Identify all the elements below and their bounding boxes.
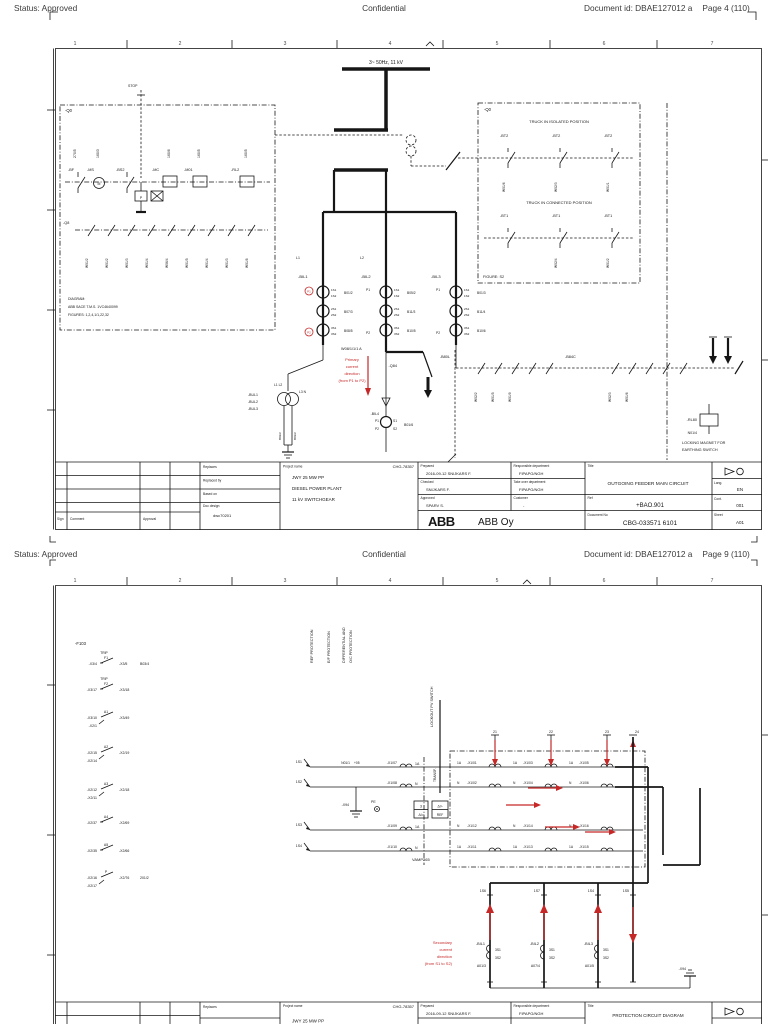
wire-label: W01/4 [205,258,209,268]
ruler-3: 3 [284,578,287,584]
svg-text:B03/4: B03/4 [140,662,149,666]
wire-label: W01/2 [606,258,610,268]
contact-item: A2 -X2/15 -X2/14 -X2/19 [87,745,130,763]
diff-protection-label: DIFFERENTIAL AND [342,627,346,663]
svg-text:-X1/12: -X1/12 [467,824,477,828]
bt1-label: -BT1 [500,214,508,218]
phase-l2: L2 [360,256,364,260]
svg-text:N: N [513,781,516,785]
tb-approved-value: SPARV S. [426,503,444,508]
wire-label: N01/1 [341,761,350,765]
coil-label: 1A [415,825,420,829]
svg-text:N: N [457,781,460,785]
relay-box: ΔI> [437,805,442,809]
bt2-label: -BT2 [552,134,560,138]
tb-customer-value: - [523,503,525,508]
svg-text:-X2/16: -X2/16 [87,876,97,880]
ct-terminal: 3S2 [394,332,400,336]
svg-text:-X2/69: -X2/69 [119,821,129,825]
contact-item: A1 -X3/10 -X2/1 -X3/49 [87,710,130,728]
p2-mark: P2 [366,331,370,335]
wire-label: W01/3 [125,258,129,268]
contact-item: P -X2/16 -X2/17 -X2/76 201/2 [87,870,149,888]
terminal-label: 1S2 [296,780,302,784]
figure-label: FIGURE: S2 [483,275,504,279]
ruler-7: 7 [711,578,714,584]
tb-approval: Approval [143,517,156,521]
bil2-label: -BIL2 [530,942,539,946]
tb-lang-value: EN [737,487,743,492]
wire-label: A01/3 [477,964,486,968]
svg-text:-X3/10: -X3/10 [87,716,97,720]
ruler-5: 5 [496,41,499,47]
q84-label: -Q84 [389,364,397,368]
bs2-label: -BS2 [116,168,124,172]
svg-text:1A: 1A [513,761,518,765]
ct-terminal: 2S2 [331,313,337,317]
contact-item: TRIP F2 -X3/17 -X3/18 [87,677,130,692]
ct-wire: B10/6 [477,329,486,333]
svg-text:F1: F1 [104,656,108,660]
red-note: direction [437,954,452,959]
ruler-4: 4 [389,41,392,47]
ruler-3: 3 [284,41,287,47]
ref-protection-label: REF PROTECTION [310,629,314,663]
contact-item: A5 -X2/35 -X2/66 [87,843,130,853]
vt-phases: L3 N [299,390,307,394]
tb-replaces: Replaces [203,1005,217,1009]
p1-mark: P1 [307,290,311,294]
x1-terminal: -X1/10 [387,845,397,849]
coil-label: N [415,782,418,786]
svg-text:-X2/17: -X2/17 [87,884,97,888]
wire-label: W02/4 [554,258,558,268]
p1-mark: P1 [375,419,379,423]
arrow-label: 21 [493,730,497,734]
svg-text:N: N [569,781,572,785]
bul2-label: -BUL2 [248,400,258,404]
ruler-2: 2 [179,578,182,584]
coil-label: N [415,846,418,850]
tb-doc-design: Doc design [203,504,220,508]
svg-text:-X2/37: -X2/37 [87,821,97,825]
svg-text:1A: 1A [513,845,518,849]
ct-terminal: 2S1 [331,307,337,311]
ruler-7: 7 [711,41,714,47]
rl2-label: -RL2 [231,168,239,172]
red-note: Secondary [433,940,452,945]
svg-text:-X1/02: -X1/02 [467,781,477,785]
tb-comment: Comment [70,517,84,521]
terminal-label: 1S1 [296,760,302,764]
ct-wire: B08/5 [344,329,353,333]
svg-text:1A: 1A [457,761,462,765]
svg-text:-X3/49: -X3/49 [119,716,129,720]
tb-cont-value: 001 [736,503,744,508]
red-note: (from P1 to P2) [338,378,366,383]
ct-terminal: 3S2 [331,332,337,336]
ruler-2: 2 [179,41,182,47]
tb-ref-label: Ref [588,496,593,500]
tb-replaced-by: Replaced by [203,479,222,483]
ct-terminal: 2S2 [394,313,400,317]
diagram-note: FIGURES: 1,2,4,1/1,22,32 [68,313,109,317]
ruler-5: 5 [496,578,499,584]
diagram-note: DIAGRAM: [68,297,85,301]
projection-symbol-icon [725,468,734,475]
bul1-label: -BUL1 [248,393,258,397]
p1-mark: P1 [366,288,370,292]
wire-label: W02/3 [608,392,612,402]
b84c-label: -B84C [565,355,576,359]
schematic-page-4: 1 2 3 4 5 6 7 3~ 50Hz, 11 kV [0,0,768,535]
ct-terminal: 1S1 [394,288,400,292]
bil1-label: -BIL1 [476,942,485,946]
motor-icon: M [98,182,101,186]
svg-text:-X2/76: -X2/76 [119,876,129,880]
x1-terminal: -X1/07 [387,761,397,765]
s1-mark: S1 [393,419,397,423]
arrow-label: 23 [605,730,609,734]
ct-secondary-circuit: 1S6 1S7 1S4 1S5 -BIL1 -BIL2 -BIL3 3S13S2… [425,889,696,988]
wire-label: 160/5 [244,149,248,158]
tb-prepared-value: 2016-09-12 SNIJKARS F. [426,471,471,476]
bf-label: -BF [68,168,75,172]
ct-terminal: 2S1 [464,307,470,311]
svg-text:-X1/11: -X1/11 [467,845,477,849]
ct-wire: B01/2 [344,291,353,295]
svg-text:-X3/17: -X3/17 [87,688,97,692]
frame: 1 2 3 4 5 6 7 [47,536,768,1024]
svg-text:1A: 1A [569,845,574,849]
bil1-label: -BIL1 [298,274,308,279]
svg-text:-X1/14: -X1/14 [523,824,533,828]
ct-terminal: 1S1 [464,288,470,292]
ct-terminal: 1S6 [480,889,486,893]
tb-project-line: JWY 25 MW PP [292,1019,324,1024]
tb-sheet-label: Sheet [714,513,723,517]
svg-text:-X2/12: -X2/12 [87,788,97,792]
x1-terminal: -X1/08 [387,781,397,785]
svg-text:-X2/15: -X2/15 [87,751,97,755]
svg-text:1A: 1A [569,761,574,765]
vamp-relay-label: VAMP265 [412,857,430,862]
tb-prepared-value: 2016-09-12 SNIJKARS F. [426,1011,471,1016]
aux-contact-chains: -B80L W02/2 W01/5 W01/9 -B84C W02/3 W01/… [440,337,743,402]
tb-project-line: 11 kV SWITCHGEAR [292,497,336,502]
tb-resp-label: Responsible department [514,1004,550,1008]
wire-label: 160/5 [197,149,201,158]
busbar-label: 3~ 50Hz, 11 kV [369,60,404,66]
voltage-transformers: -BUL1 -BUL2 -BUL3 L1 L2 L3 N B02/2 B03/2 [248,345,323,458]
wire-label: B03/2 [293,432,297,440]
schematic-page-9: 1 2 3 4 5 6 7 -F103 TRIP F1 -X3/4 -X3/5 … [0,535,768,1024]
bil3-label: -BIL3 [584,942,593,946]
bil3-label: -BIL3 [431,274,441,279]
truck-isolated-title: TRUCK IN ISOLATED POSITION [529,119,589,124]
f103-label: -F103 [75,641,87,646]
tb-title-value: OUTGOING FEEDER MAIN CIRCUIT [607,481,688,487]
wire-label: W01/9 [508,392,512,402]
relay-box: REF [437,813,444,817]
tb-prepared-label: Prepared [421,1004,435,1008]
circuit-breaker-box: -Q0 STOP 270/5 160/3 160/6 160/5 160/5 -… [60,84,275,330]
tb-resp-value: FIPAPG/NGH [519,1011,543,1016]
p2-mark: P2 [436,331,440,335]
tb-project-label: Project name [283,1004,303,1008]
svg-text:3S1: 3S1 [495,948,501,952]
bil4-label: -BIL4 [371,412,379,416]
wire-label: W02/3 [554,182,558,192]
wire-label: B02/2 [278,432,282,440]
ct-terminal: 2S1 [394,307,400,311]
tb-cont-label: Cont. [714,497,722,501]
document-page-4: Status: Approved Confidential Document i… [0,0,768,535]
svg-text:-X3/5: -X3/5 [119,662,127,666]
relay-wiring: 1S1 1S2 1S3 1S4 N01/1 +05 -X1/07 -X1/08 … [296,730,700,982]
tb-title-value: PROTECTION CIRCUIT DIAGRAM [612,1013,683,1018]
red-note: (from S1 to S2) [425,961,453,966]
phase-l1: L1 [296,256,300,260]
wire-label: +05 [354,761,360,765]
svg-text:-X2/14: -X2/14 [87,759,97,763]
tb-based-on: Based on [203,492,217,496]
stop-label: STOP [128,84,138,88]
wire-label: W01/8 [245,258,249,268]
tb-checked-value: SNIJKARS F. [426,487,450,492]
tb-project-line: DIESEL POWER PLANT [292,486,342,491]
wire-label: W01/6 [625,392,629,402]
red-note: current [440,947,453,952]
wire-label: W01/3 [225,258,229,268]
projection-symbol-icon [725,1008,734,1015]
coil-label: 1A [415,762,420,766]
wire-label: W06/4 [165,258,169,268]
tb-checked-label: Checked [421,480,434,484]
tb-sheet-value: A01 [736,520,745,525]
frame: 1 2 3 4 5 6 7 [47,12,768,530]
svg-text:A1: A1 [104,710,108,714]
tb-customer-label: Customer [514,496,529,500]
bt2-label: -BT2 [500,134,508,138]
ct-terminal: 1S5 [623,889,629,893]
svg-text:P: P [105,870,108,874]
p2-mark: P2 [307,331,311,335]
terminal-label: 1S3 [296,823,302,827]
rl80-label: -RL80 [687,418,697,422]
svg-text:3S1: 3S1 [549,948,555,952]
q8-label: -Q8 [63,221,69,225]
svg-text:3S1: 3S1 [603,948,609,952]
svg-text:A3: A3 [104,782,108,786]
wire-label: A07/4 [531,964,540,968]
ct-terminal: 2S2 [464,313,470,317]
tb-takeover-label: Take over department [514,480,546,484]
svg-text:A4: A4 [104,815,108,819]
wire-label: N01/4 [688,431,697,435]
document-page-9: Status: Approved Confidential Document i… [0,535,768,1024]
x1-terminal: -X1/09 [387,824,397,828]
oc-protection-label: O/C PROTECTION [349,630,353,663]
f103-contact-list: -F103 TRIP F1 -X3/4 -X3/5 B03/4 TRIP F2 … [75,641,149,888]
bt1-label: -BT1 [552,214,560,218]
bt1-label: -BT1 [604,214,612,218]
svg-text:N: N [457,824,460,828]
svg-text:-X2/1: -X2/1 [89,724,97,728]
tb-takeover-value: FIPAPG/NGH [519,487,543,492]
ruler-4: 4 [389,578,392,584]
ct-wire: B01/3 [477,291,486,295]
svg-text:TRIP: TRIP [100,677,108,681]
abb-logo: ABB [428,514,455,529]
svg-text:-X1/05: -X1/05 [579,761,589,765]
tb-lang-label: Lang. [714,481,722,485]
truck-position-box: -Q0 TRUCK IN ISOLATED POSITION -BT2 -BT2… [478,103,640,283]
wire-label: 160/6 [167,149,171,158]
ct-terminal: 3S1 [331,326,337,330]
svg-text:-X2/18: -X2/18 [119,788,129,792]
locking-magnet: -RL80 N01/4 LOCKING MAGNET FOR EARTHING … [682,404,726,452]
title-block: Sign Comment Approval Replaces Replaced … [55,462,762,530]
svg-text:-X1/16: -X1/16 [579,824,589,828]
relay-box: 3 [420,805,422,809]
vt-phases: L1 L2 [274,383,282,387]
earthing-switch-branch: -Q84 -BIL4 P1 P2 S1 S2 B01/6 [371,345,456,462]
ct-wire: B10/5 [407,329,416,333]
ct-wire: B05/2 [407,291,416,295]
locking-magnet-note: EARTHING SWITCH [682,448,718,452]
wire-label: W01/4 [145,258,149,268]
relay-box: ΔI> [418,813,423,817]
wire-label: B01/6 [404,423,413,427]
svg-text:A2: A2 [104,745,108,749]
svg-text:-X2/66: -X2/66 [119,849,129,853]
p-junction-label: P [140,196,143,200]
p2-mark: P2 [375,427,379,431]
mc-label: -MC [152,168,159,172]
svg-text:-X1/06: -X1/06 [579,781,589,785]
tb-project-code: CHG-78357 [393,1004,415,1009]
ct-terminal: 3S1 [394,326,400,330]
svg-text:-X1/03: -X1/03 [523,761,533,765]
q0-left-label: -Q0 [65,108,73,113]
ct-terminal: 3S2 [464,332,470,336]
wire-label: W01/2 [85,258,89,268]
svg-text:-X1/04: -X1/04 [523,781,533,785]
p1-mark: P1 [436,288,440,292]
x94-label: -X94 [342,803,349,807]
ct-terminal: 1S2 [394,294,400,298]
wire-label: W01/2 [105,258,109,268]
wire-label: W01/5 [185,258,189,268]
svg-text:3S2: 3S2 [495,956,501,960]
abb-oy-label: ABB Oy [478,517,514,528]
bul3-label: -BUL3 [248,407,258,411]
arrow-label: 24 [635,730,639,734]
svg-text:3S2: 3S2 [603,956,609,960]
current-transformers: L1 L2 -BIL1 -BIL2 -BIL3 1S1 1S2 2S1 2S2 … [296,256,486,396]
red-note: current [346,364,359,369]
ct-wire: B11/3 [407,310,416,314]
wire-label: 160/3 [96,149,100,158]
arrow-label: 22 [549,730,553,734]
svg-text:1A: 1A [457,845,462,849]
svg-text:-X2/35: -X2/35 [87,849,97,853]
bil2-label: -BIL2 [361,274,371,279]
tb-project-line: JWY 25 MW PP [292,475,324,480]
ms-label: -MS [87,168,94,172]
b80l-label: -B80L [440,355,450,359]
bt2-label: -BT2 [604,134,612,138]
svg-text:-X2/19: -X2/19 [119,751,129,755]
svg-text:N: N [513,824,516,828]
locking-magnet-note: LOCKING MAGNET FOR [682,441,726,445]
ct-terminal: 3S1 [464,326,470,330]
tb-doc-design-value: dwc70201 [213,513,232,518]
tb-replaces: Replaces [203,465,217,469]
wire-label: W01/5 [491,392,495,402]
contact-item: TRIP F1 -X3/4 -X3/5 B03/4 [89,651,150,666]
svg-text:3S2: 3S2 [549,956,555,960]
ruler-6: 6 [603,578,606,584]
ruler-1: 1 [74,41,77,47]
cable-label: W08/1/1/1 A [341,347,362,351]
tb-title-label: Title [588,464,594,468]
protection-function-labels: REF PROTECTION E/F PROTECTION DIFFERENTI… [310,627,440,793]
wire-label: A01/5 [585,964,594,968]
transf-label: TRANSF. [433,768,437,782]
ct-terminal: 1S2 [464,294,470,298]
tb-resp-value: FIPAPG/NGH [519,471,543,476]
ef-protection-label: E/F PROTECTION [327,631,331,663]
ct-wire: B11/4 [477,310,486,314]
svg-text:-X3/18: -X3/18 [119,688,129,692]
tb-sign: Sign [57,517,64,521]
svg-text:A5: A5 [104,843,108,847]
svg-text:-X1/13: -X1/13 [523,845,533,849]
svg-text:-X3/4: -X3/4 [89,662,97,666]
ct-terminal: 1S4 [588,889,594,893]
ct-terminal: 1S1 [331,288,337,292]
svg-text:TRIP: TRIP [100,651,108,655]
tb-ref-value: +BAO.901 [636,503,665,509]
q0-right-label: -Q0 [484,107,492,112]
wire-label: W01/1 [606,182,610,192]
contact-item: A4 -X2/37 -X2/69 [87,815,130,825]
svg-text:201/2: 201/2 [140,876,149,880]
tb-resp-label: Responsible department [514,464,550,468]
tb-approved-label: Approved [421,496,435,500]
tb-project-code: CHG-78357 [393,464,415,469]
diagram-note: ABB SACE T.M.S. 1VC4640099 [68,305,118,309]
red-note: direction [344,371,359,376]
ct-terminal: 1S7 [534,889,540,893]
terminal-label: 1S4 [296,844,302,848]
contact-item: A3 -X2/12 -X2/11 -X2/18 [87,782,130,800]
red-note: Primary [345,357,359,362]
ct-wire: B07/3 [344,310,353,314]
m01-label: -M01 [184,168,193,172]
title-block-partial: Replaces Project name CHG-78357 JWY 25 M… [55,1002,762,1024]
wire-label: 270/5 [73,149,77,158]
x94-label: -X94 [679,967,686,971]
tb-docno-value: CBG-033571 6101 [623,520,678,527]
tb-docno-label: Document No [588,513,608,517]
svg-text:F2: F2 [104,682,108,686]
s2-mark: S2 [393,427,397,431]
ruler-1: 1 [74,578,77,584]
truck-connected-title: TRUCK IN CONNECTED POSITION [526,200,592,205]
